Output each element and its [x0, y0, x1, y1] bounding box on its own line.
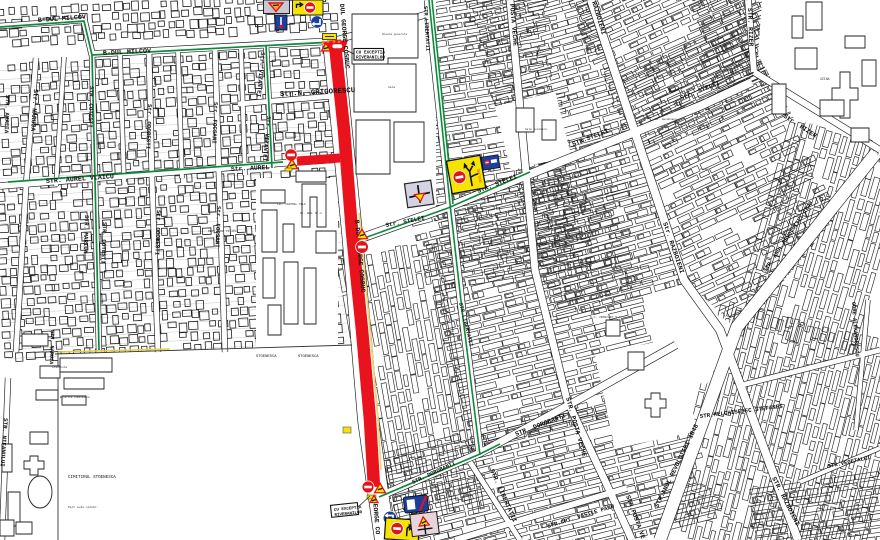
svg-text:STR. COTESTI: STR. COTESTI [87, 86, 95, 128]
svg-text:hala: hala [388, 85, 395, 89]
svg-text:Scoala generala: Scoala generala [382, 32, 407, 36]
svg-text:S.C. VRANCART S.A.: S.C. VRANCART S.A. [590, 316, 623, 319]
svg-text:DEP. ZONA II APA: DEP. ZONA II APA [208, 230, 237, 233]
svg-text:STOENESCA: STOENESCA [256, 355, 277, 359]
svg-text:STR. RIZER: STR. RIZER [746, 8, 754, 47]
svg-text:Str. FOCSANI: Str. FOCSANI [211, 102, 219, 144]
svg-text:SC. GEN. Nr.2: SC. GEN. Nr.2 [300, 212, 322, 215]
svg-text:Gradinita: Gradinita [52, 365, 67, 369]
svg-text:STOENESCA: STOENESCA [298, 355, 319, 359]
svg-text:hala mecanica: hala mecanica [525, 127, 547, 131]
svg-text:STR. COTESTI: STR. COTESTI [100, 222, 108, 264]
svg-text:LIC. CENTRAL VILA: LIC. CENTRAL VILA [277, 203, 306, 206]
svg-text:Sc. danubiana: Sc. danubiana [655, 117, 677, 121]
svg-text:Biserica Armeneasca: Biserica Armeneasca [60, 395, 90, 399]
svg-text:STR. NARUJA: STR. NARUJA [48, 330, 55, 365]
svg-text:STR. MARIUA: STR. MARIUA [82, 215, 90, 254]
svg-text:Parc auto-salubr.: Parc auto-salubr. [68, 505, 99, 509]
svg-text:STR. AMALIA: STR. AMALIA [3, 95, 11, 134]
svg-text:UZINA: UZINA [820, 77, 830, 81]
svg-text:Str. FOCSANI: Str. FOCSANI [214, 206, 222, 248]
svg-text:CIMITIRUL STOENESCA: CIMITIRUL STOENESCA [68, 476, 116, 480]
svg-text:RIVERANILOR: RIVERANILOR [356, 56, 385, 61]
svg-text:Camin: Camin [700, 167, 709, 171]
